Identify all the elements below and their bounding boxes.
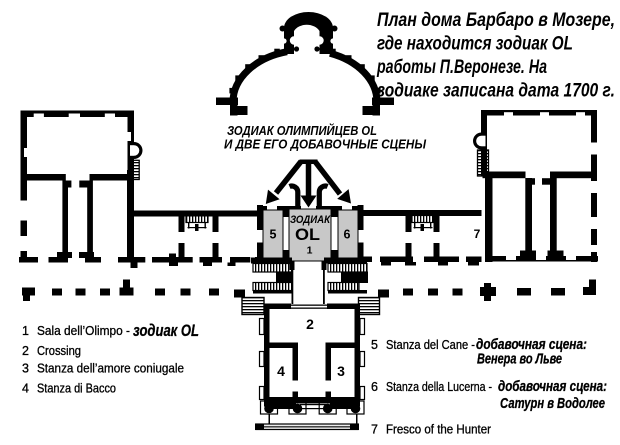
- svg-text:зодиак OL: зодиак OL: [133, 321, 199, 340]
- svg-text:3: 3: [337, 363, 345, 379]
- svg-text:5: 5: [371, 338, 378, 352]
- svg-text:2: 2: [22, 344, 29, 358]
- svg-text:Stanza dell’amore coniugale: Stanza dell’amore coniugale: [37, 362, 184, 376]
- svg-text:Stanza della Lucerna -: Stanza della Lucerna -: [386, 380, 492, 394]
- svg-text:7: 7: [371, 423, 378, 437]
- svg-text:ЗОДИАК: ЗОДИАК: [290, 214, 331, 226]
- svg-text:2: 2: [306, 316, 314, 332]
- svg-text:ЗОДИАК ОЛИМПИЙЦЕВ OL: ЗОДИАК ОЛИМПИЙЦЕВ OL: [227, 122, 377, 138]
- svg-text:Сатурн в Водолее: Сатурн в Водолее: [500, 396, 605, 412]
- svg-text:работы П.Веронезе. На: работы П.Веронезе. На: [376, 57, 547, 78]
- svg-text:6: 6: [344, 228, 351, 242]
- svg-text:зодиаке записана дата 1700 г.: зодиаке записана дата 1700 г.: [377, 81, 615, 102]
- svg-text:Sala dell’Olimpo -: Sala dell’Olimpo -: [37, 324, 130, 338]
- svg-text:где находится зодиак OL: где находится зодиак OL: [377, 34, 573, 55]
- svg-text:И ДВЕ ЕГО ДОБАВОЧНЫЕ СЦЕНЫ: И ДВЕ ЕГО ДОБАВОЧНЫЕ СЦЕНЫ: [224, 138, 426, 152]
- svg-text:4: 4: [22, 382, 29, 396]
- svg-text:Fresco of the Hunter: Fresco of the Hunter: [386, 423, 491, 437]
- svg-text:добавочная сцена:: добавочная сцена:: [498, 379, 607, 395]
- svg-text:1: 1: [22, 324, 29, 338]
- svg-text:Венера во Льве: Венера во Льве: [477, 352, 562, 368]
- svg-text:Stanza di Bacco: Stanza di Bacco: [37, 382, 116, 396]
- svg-text:1: 1: [307, 245, 313, 257]
- svg-text:7: 7: [474, 227, 481, 241]
- svg-text:4: 4: [277, 363, 285, 379]
- svg-text:Crossing: Crossing: [37, 344, 81, 358]
- svg-text:Stanza del Cane -: Stanza del Cane -: [386, 338, 475, 352]
- svg-text:План дома Барбаро в Мозере,: План дома Барбаро в Мозере,: [377, 10, 615, 31]
- svg-text:6: 6: [371, 380, 378, 394]
- svg-text:3: 3: [22, 362, 29, 376]
- svg-text:5: 5: [270, 228, 277, 242]
- svg-text:OL: OL: [295, 226, 320, 244]
